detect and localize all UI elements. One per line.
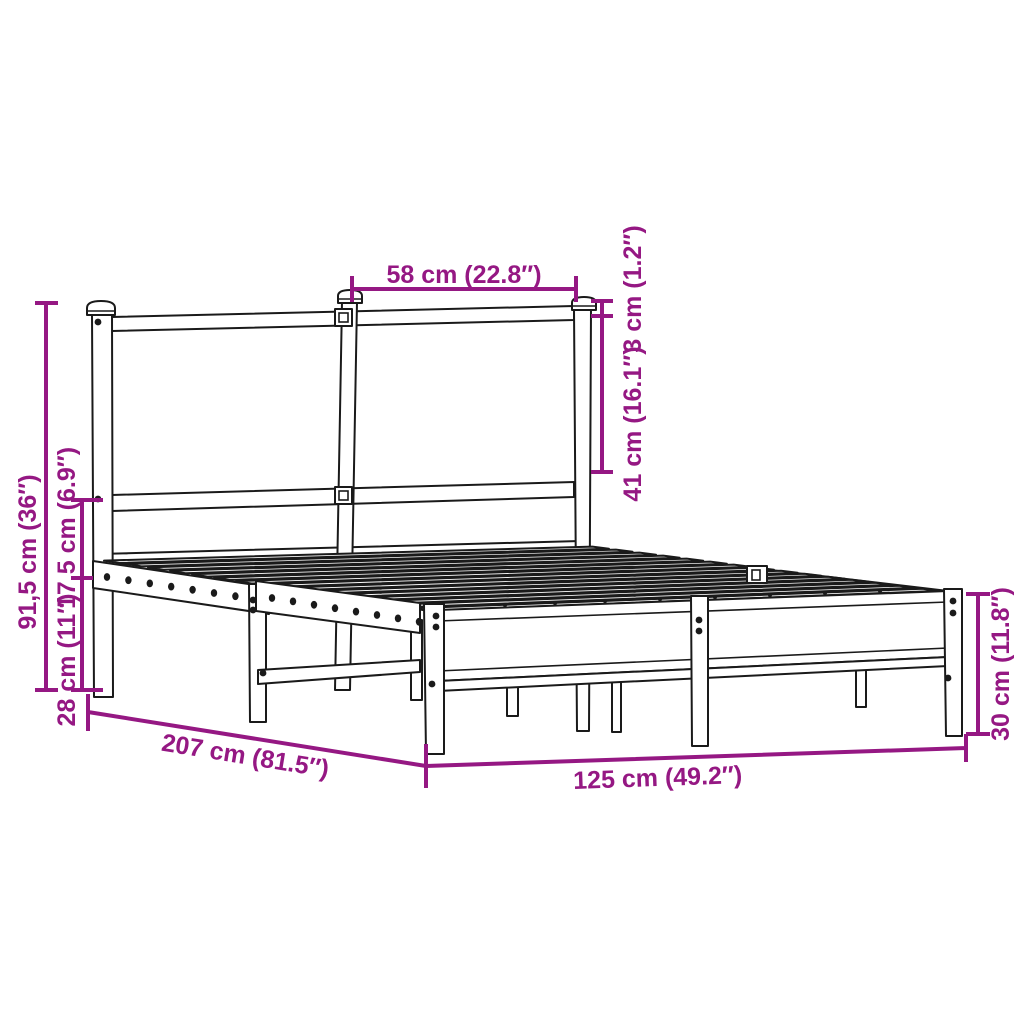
slat-screw-mark <box>768 593 772 597</box>
screw <box>696 628 703 635</box>
screw <box>433 624 440 631</box>
post-cap <box>87 301 115 315</box>
slat-screw-mark <box>553 601 557 605</box>
rail-hole <box>374 611 380 619</box>
dimension-label: 58 cm (22.8″) <box>386 261 541 289</box>
bed-frame-dimension-diagram: 58 cm (22.8″) 3 cm (1.2″) 41 cm (16.1″) … <box>0 0 1024 1024</box>
screw <box>260 670 267 677</box>
screw <box>696 617 703 624</box>
rail-hole <box>311 601 317 609</box>
screw <box>945 675 952 682</box>
dimension-label: 3 cm (1.2″) <box>619 225 647 352</box>
dimension-label: 28 cm (11″) <box>53 594 81 727</box>
rail-hole <box>168 583 174 591</box>
bed-drawing <box>87 290 962 754</box>
rail-hole <box>189 586 195 594</box>
dim-headboard-total-height: 91,5 cm (36″) <box>14 303 58 690</box>
screw <box>433 613 440 620</box>
rail-hole <box>353 608 359 616</box>
screw <box>250 607 257 614</box>
dim-frame-height: 30 cm (11.8″) <box>966 587 1015 741</box>
dimension-line <box>591 301 613 472</box>
rail-hole <box>125 576 131 584</box>
diagram-canvas: 58 cm (22.8″) 3 cm (1.2″) 41 cm (16.1″) … <box>0 0 1024 1024</box>
rail-hole <box>147 580 153 588</box>
rail-clamp <box>335 309 352 326</box>
rail-hole <box>269 594 275 602</box>
slat-screw-mark <box>658 597 662 601</box>
dimension-label: 30 cm (11.8″) <box>987 587 1015 741</box>
dim-top-rail-thickness-and-panel-height: 3 cm (1.2″) 41 cm (16.1″) <box>591 225 647 501</box>
dimension-label: 41 cm (16.1″) <box>619 346 647 501</box>
dim-headboard-panel-width: 58 cm (22.8″) <box>352 261 576 302</box>
headboard-left-post <box>92 314 113 697</box>
screw <box>950 610 957 617</box>
rail-hole <box>104 573 110 581</box>
slat-screw-mark <box>713 595 717 599</box>
rail-hole <box>290 598 296 606</box>
screw <box>250 597 257 604</box>
screw <box>95 319 102 326</box>
rail-hole <box>211 589 217 597</box>
screw <box>950 598 957 605</box>
dimension-label: 17,5 cm (6.9″) <box>53 447 81 609</box>
rail-hole <box>332 604 338 612</box>
rail-clamp <box>335 487 352 504</box>
rail-hole <box>395 615 401 623</box>
rail-hole <box>416 618 422 626</box>
slat-screw-mark <box>603 599 607 603</box>
slat-screw-mark <box>823 591 827 595</box>
dimension-label: 125 cm (49.2″) <box>573 761 743 795</box>
rail-hole <box>232 592 238 600</box>
screw <box>429 681 436 688</box>
slat-screw-mark <box>878 589 882 593</box>
dimension-label: 91,5 cm (36″) <box>14 474 42 629</box>
